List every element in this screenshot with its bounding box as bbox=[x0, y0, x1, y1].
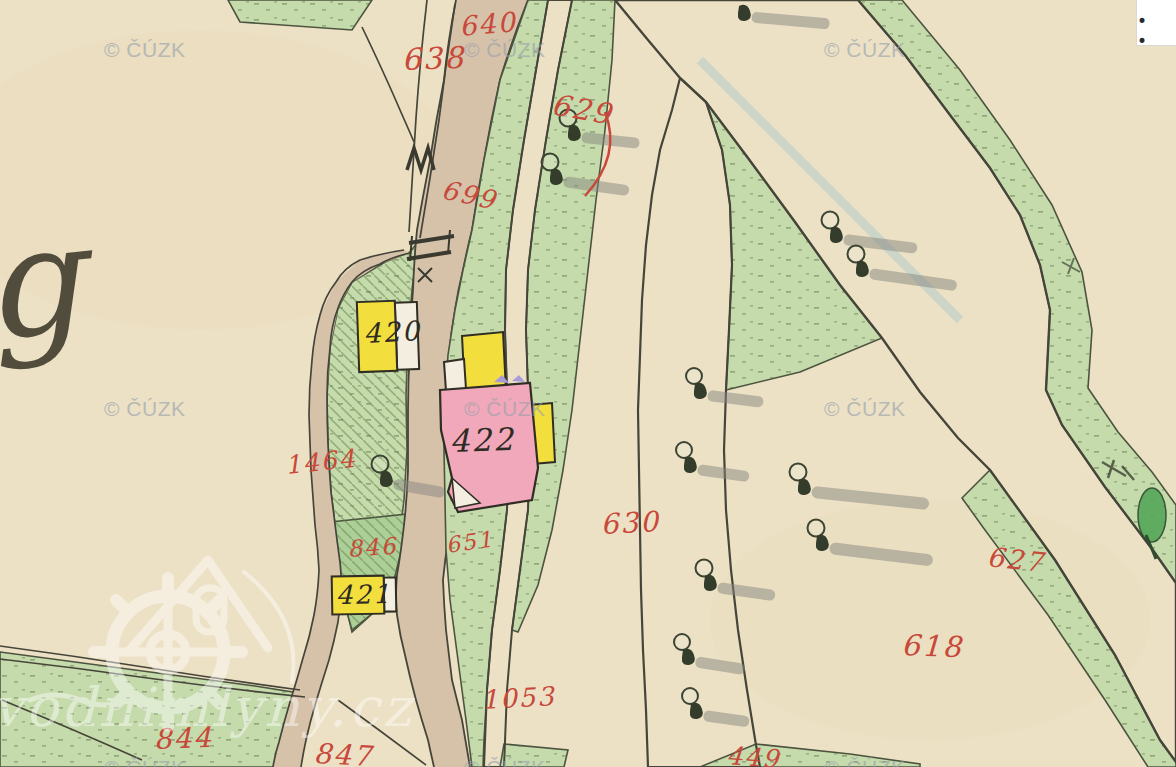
parcel-label-1053: 1053 bbox=[481, 681, 557, 715]
parcel-label-638: 638 bbox=[401, 40, 466, 77]
building-label-420: 420 bbox=[363, 315, 423, 349]
cuzk-watermark: © ČÚZK bbox=[464, 756, 545, 767]
cuzk-watermark: © ČÚZK bbox=[824, 756, 905, 767]
parcel-label-449: 449 bbox=[726, 741, 782, 767]
map-canvas[interactable]: g 640 638 629 699 1464 846 651 630 627 6… bbox=[0, 0, 1176, 767]
cuzk-watermark: © ČÚZK bbox=[824, 397, 905, 420]
more-options-button[interactable]: • • bbox=[1136, 0, 1176, 46]
ellipsis-icon: • • bbox=[1137, 11, 1176, 45]
building-label-422: 422 bbox=[449, 421, 516, 459]
parcel-label-846: 846 bbox=[347, 533, 399, 562]
parcel-label-630: 630 bbox=[600, 505, 661, 541]
site-watermark-text: vodnimlyny.cz bbox=[0, 676, 415, 739]
parcel-label-627: 627 bbox=[985, 541, 1047, 578]
parcel-label-847: 847 bbox=[313, 737, 375, 767]
cuzk-watermark: © ČÚZK bbox=[104, 397, 185, 420]
parcel-label-640: 640 bbox=[458, 6, 519, 42]
building-label-421: 421 bbox=[336, 579, 392, 610]
cuzk-watermark: © ČÚZK bbox=[824, 38, 905, 61]
map-viewer: g 640 638 629 699 1464 846 651 630 627 6… bbox=[0, 0, 1176, 767]
parcel-label-618: 618 bbox=[901, 628, 964, 664]
cuzk-watermark: © ČÚZK bbox=[464, 38, 545, 61]
cuzk-watermark: © ČÚZK bbox=[464, 397, 545, 420]
cuzk-watermark: © ČÚZK bbox=[104, 756, 185, 767]
cuzk-watermark: © ČÚZK bbox=[104, 38, 185, 61]
